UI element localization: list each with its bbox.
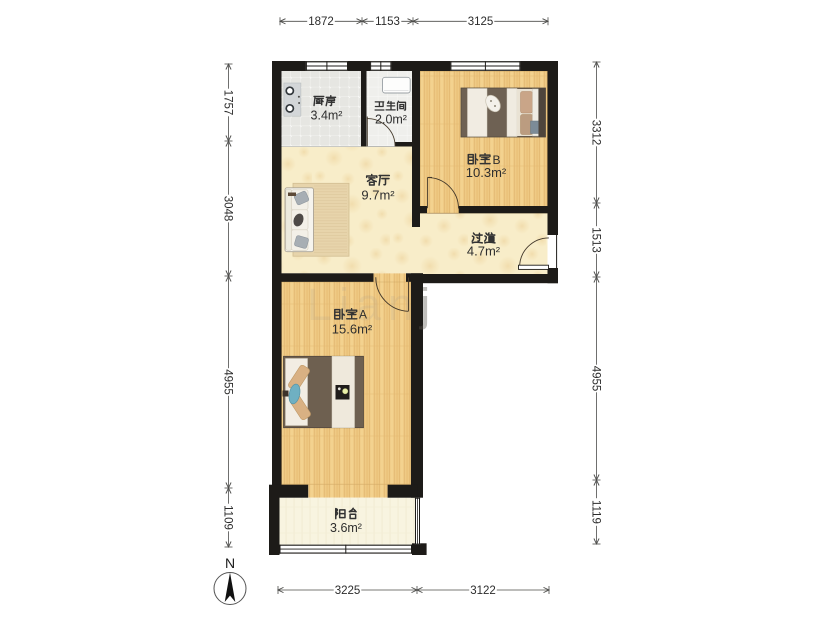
svg-text:3122: 3122 [470,585,496,597]
svg-text:10.3m²: 10.3m² [466,165,507,180]
svg-text:1872: 1872 [308,16,334,28]
svg-text:1119: 1119 [590,500,602,524]
svg-text:4955: 4955 [590,366,602,392]
svg-text:3048: 3048 [222,196,234,222]
svg-text:1757: 1757 [222,90,234,116]
svg-text:A: A [359,308,367,322]
svg-text:3.6m²: 3.6m² [330,521,362,535]
svg-text:1513: 1513 [590,227,602,253]
svg-text:9.7m²: 9.7m² [361,188,395,203]
svg-text:2.0m²: 2.0m² [375,113,407,127]
svg-text:15.6m²: 15.6m² [332,322,373,337]
svg-text:1109: 1109 [222,505,234,530]
svg-text:3125: 3125 [468,16,494,28]
svg-text:3312: 3312 [590,120,602,146]
svg-text:4.7m²: 4.7m² [467,244,501,259]
svg-text:N: N [225,555,235,571]
svg-text:3225: 3225 [335,585,361,597]
svg-text:3.4m²: 3.4m² [311,109,343,123]
svg-text:4955: 4955 [222,369,234,395]
svg-text:1153: 1153 [375,16,400,28]
